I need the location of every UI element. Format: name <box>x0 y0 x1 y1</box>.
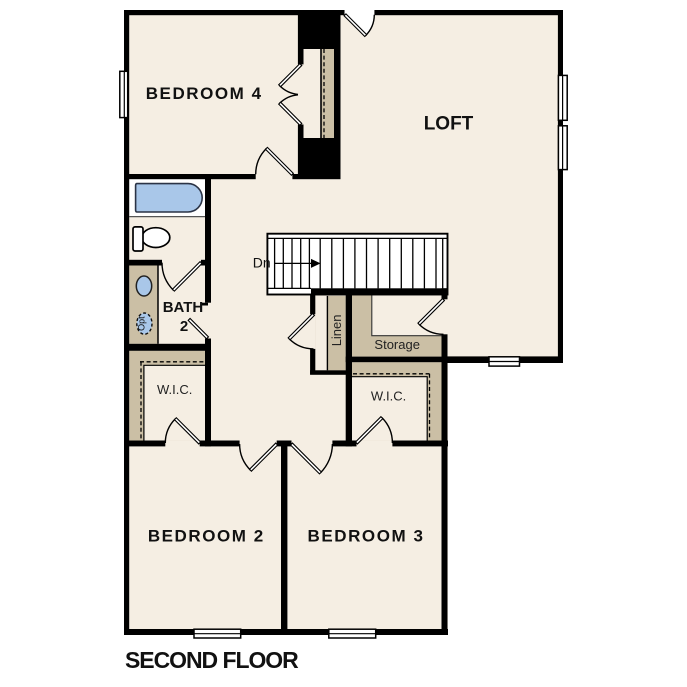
svg-text:LOFT: LOFT <box>424 113 474 134</box>
svg-text:W.I.C.: W.I.C. <box>157 382 192 397</box>
svg-text:W.I.C.: W.I.C. <box>371 389 406 404</box>
svg-text:BEDROOM 3: BEDROOM 3 <box>308 526 425 545</box>
svg-text:Opt: Opt <box>136 316 146 331</box>
svg-text:BEDROOM 4: BEDROOM 4 <box>146 84 263 103</box>
svg-text:BEDROOM 2: BEDROOM 2 <box>148 526 265 545</box>
svg-text:SECOND FLOOR: SECOND FLOOR <box>125 647 299 673</box>
svg-text:Dn: Dn <box>253 254 271 270</box>
svg-text:2: 2 <box>180 318 188 335</box>
svg-text:BATH: BATH <box>163 299 204 316</box>
svg-text:Storage: Storage <box>374 337 420 352</box>
svg-text:Linen: Linen <box>329 314 344 346</box>
